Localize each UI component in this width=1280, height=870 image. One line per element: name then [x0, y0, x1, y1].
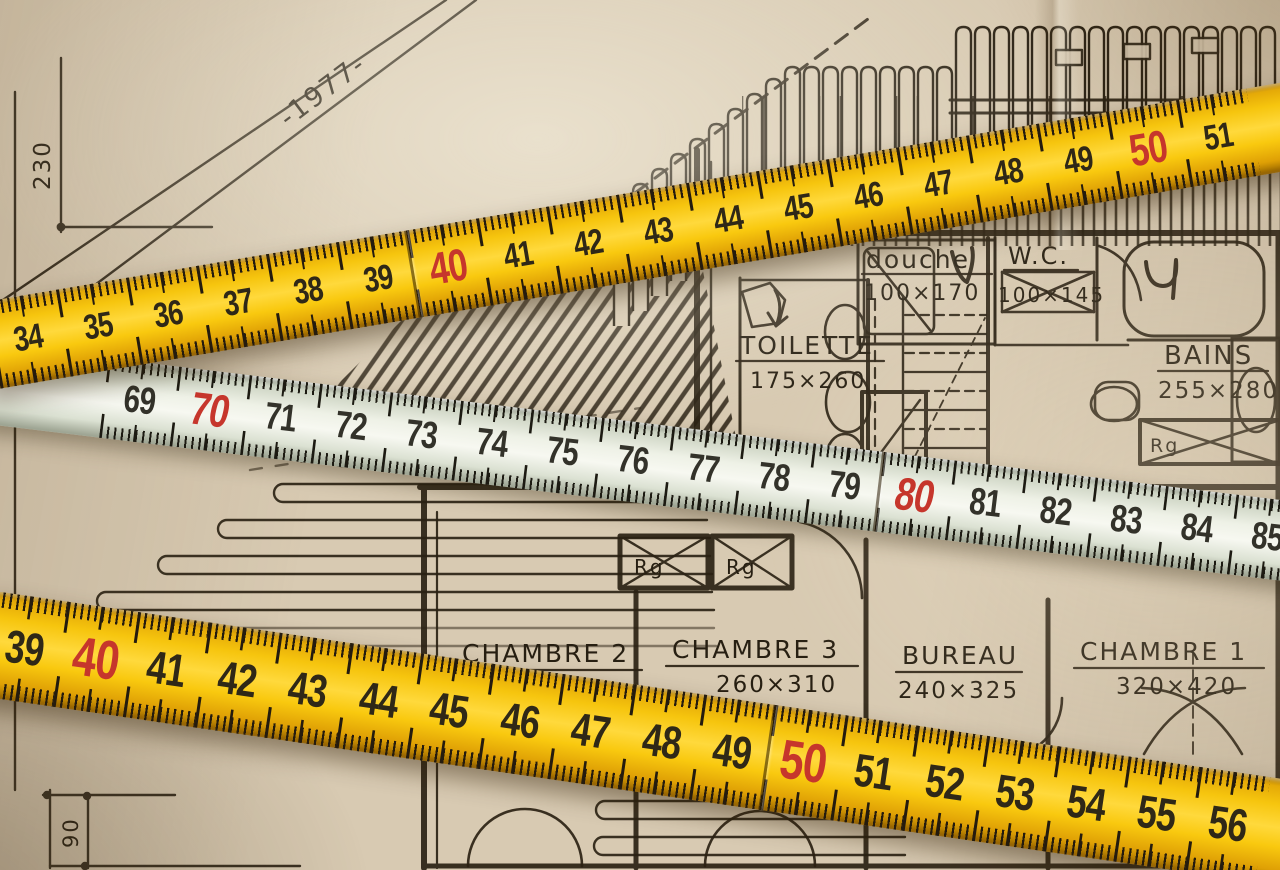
ruler-number: 48 — [978, 148, 1039, 197]
ruler-number: 50 — [1117, 118, 1180, 179]
ruler-number: 53 — [984, 762, 1047, 823]
ruler-number: 79 — [814, 462, 874, 511]
ruler-number: 42 — [205, 648, 268, 709]
ruler-cm-segment: 71 — [240, 375, 320, 463]
ruler-number: 83 — [1096, 496, 1156, 545]
ruler-cm-segment: 56 — [1184, 767, 1270, 870]
ruler-number: 39 — [348, 255, 409, 304]
ruler-number: 76 — [603, 436, 663, 485]
room-size-chambre3: 260×310 — [716, 672, 837, 698]
ruler-number: 42 — [558, 219, 619, 268]
ruler-number: 46 — [488, 689, 551, 750]
ruler-number: 39 — [0, 617, 56, 678]
ruler-number: 50 — [771, 726, 835, 797]
room-size-wc: 100×145 — [998, 283, 1105, 307]
ruler-number: 72 — [321, 402, 381, 451]
ruler-number: 36 — [138, 290, 199, 339]
ruler-number: 43 — [276, 658, 339, 719]
room-label-wc: W.C. — [1008, 242, 1069, 270]
ruler-number: 80 — [881, 465, 948, 525]
room-label-douche: douche — [866, 245, 970, 274]
ruler-cm-segment: 75 — [522, 409, 602, 497]
ruler-cm-segment: 81 — [945, 461, 1025, 549]
room-label-bureau: BUREAU — [902, 641, 1018, 670]
ruler-number: 85 — [1237, 513, 1280, 562]
ruler-cm-segment: 82 — [1015, 469, 1095, 557]
ruler-cm-segment: 69 — [99, 358, 179, 446]
ruler-number: 43 — [628, 207, 689, 256]
ruler-number: 37 — [208, 278, 269, 327]
ruler-number: 56 — [1196, 793, 1259, 854]
ruler-number: 73 — [391, 411, 451, 460]
ruler-number: 75 — [532, 428, 592, 477]
ruler-number: 35 — [68, 302, 129, 351]
ruler-number: 81 — [955, 479, 1015, 528]
ruler-cm-segment: 73 — [381, 392, 461, 480]
ruler-cm-segment: 76 — [593, 418, 673, 506]
ruler-number: 70 — [177, 380, 244, 440]
ruler-number: 40 — [417, 237, 480, 298]
ruler-number: 69 — [109, 377, 169, 426]
ruler-number: 54 — [1054, 772, 1117, 833]
ruler-number: 41 — [135, 638, 198, 699]
ruler-number: 52 — [913, 751, 976, 812]
ruler-number: 45 — [768, 184, 829, 233]
ruler-number: 51 — [1188, 113, 1249, 162]
ruler-number: 74 — [462, 419, 522, 468]
ruler-number: 77 — [673, 445, 733, 494]
scene-floorplan-with-folding-rulers: douche 100×170 W.C. 100×145 TOILETTE 175… — [0, 0, 1280, 870]
ruler-number: 44 — [347, 669, 410, 730]
room-size-bains: 255×280 — [1158, 378, 1279, 404]
room-label-toilette: TOILETTE — [739, 331, 874, 360]
ruler-cm-segment: 70 — [170, 367, 250, 455]
dimension-230: 230 — [30, 140, 56, 190]
ruler-number: 41 — [488, 231, 549, 280]
ruler-number: 45 — [418, 679, 481, 740]
closet-label-rg-2: Rg — [726, 555, 757, 579]
ruler-cm-segment: 83 — [1086, 478, 1166, 566]
room-size-douche: 100×170 — [864, 281, 980, 306]
ruler-number: 84 — [1167, 505, 1227, 554]
year-annotation: -1977- — [274, 49, 373, 134]
ruler-cm-segment: 84 — [1156, 486, 1236, 574]
ruler-number: 82 — [1026, 488, 1086, 537]
ruler-cm-segment: 51 — [1176, 89, 1261, 188]
ruler-number: 48 — [630, 710, 693, 771]
ruler-number: 46 — [838, 172, 899, 221]
ruler-number: 51 — [842, 741, 905, 802]
ruler-number: 38 — [278, 267, 339, 316]
closet-label-rg-1: Rg — [634, 555, 665, 579]
room-size-toilette: 175×260 — [750, 369, 866, 394]
ruler-cm-segment: 74 — [452, 401, 532, 489]
ruler-number: 78 — [744, 453, 804, 502]
ruler-cm-segment: 80 — [875, 452, 955, 540]
ruler-number: 40 — [63, 622, 127, 693]
ruler-number: 49 — [1048, 136, 1109, 185]
ruler-number: 34 — [0, 314, 59, 363]
ruler-number: 55 — [1125, 782, 1188, 843]
ruler-cm-segment: 79 — [804, 444, 884, 532]
room-size-bureau: 240×325 — [898, 678, 1019, 704]
dimension-90: 90 — [59, 817, 83, 848]
ruler-cm-segment: 78 — [734, 435, 814, 523]
closet-label-rg-3: Rg — [1150, 435, 1179, 457]
ruler-cm-segment: 72 — [311, 384, 391, 472]
room-label-chambre3: CHAMBRE 3 — [672, 635, 839, 664]
ruler-cm-segment: 85 — [1227, 495, 1280, 583]
room-size-chambre1: 320×420 — [1116, 674, 1237, 700]
ruler-number: 71 — [250, 394, 310, 443]
ruler-number: 47 — [559, 700, 622, 761]
ruler-number: 49 — [701, 720, 764, 781]
room-label-chambre1: CHAMBRE 1 — [1080, 637, 1247, 666]
room-label-bains: BAINS — [1164, 341, 1253, 371]
ruler-number: 44 — [698, 196, 759, 245]
ruler-cm-segment: 77 — [663, 426, 743, 514]
ruler-number: 47 — [908, 160, 969, 209]
